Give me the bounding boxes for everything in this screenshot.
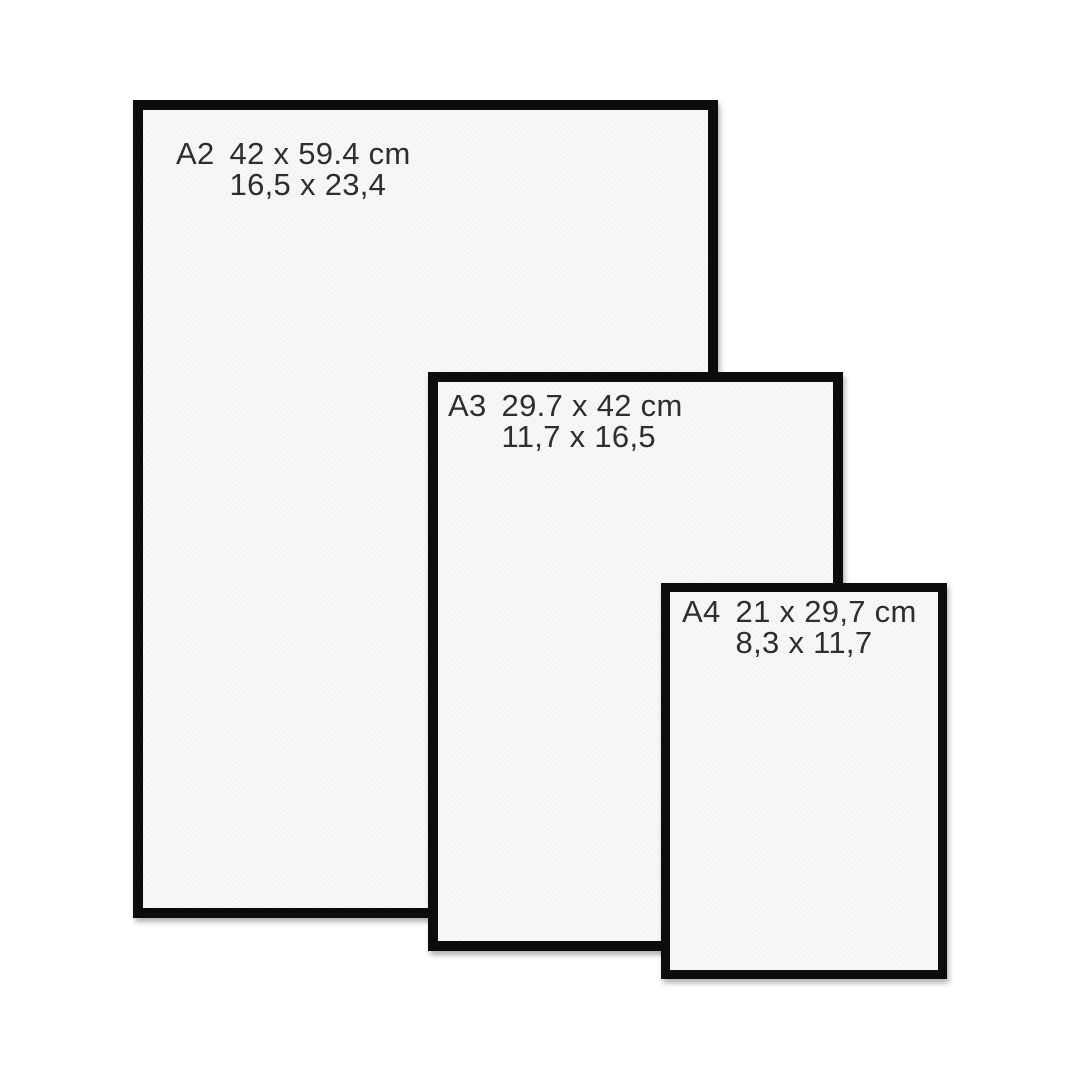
frame-a4-dimensions: 21 x 29,7 cm 8,3 x 11,7 <box>736 596 917 658</box>
frame-a4-size-inches: 8,3 x 11,7 <box>736 627 917 658</box>
frame-a3-label: A3 <box>448 390 487 421</box>
frame-a2-label: A2 <box>176 138 215 169</box>
frame-a2-dimensions: 42 x 59.4 cm 16,5 x 23,4 <box>230 138 411 200</box>
frame-a2-size-cm: 42 x 59.4 cm <box>230 138 411 169</box>
frame-a4-size-text: A4 21 x 29,7 cm 8,3 x 11,7 <box>670 592 938 658</box>
frame-a2-size-inches: 16,5 x 23,4 <box>230 169 411 200</box>
frame-a4-size-cm: 21 x 29,7 cm <box>736 596 917 627</box>
frame-a4: A4 21 x 29,7 cm 8,3 x 11,7 <box>661 583 947 979</box>
frame-a3-size-cm: 29.7 x 42 cm <box>502 390 683 421</box>
frame-a3-size-inches: 11,7 x 16,5 <box>502 421 683 452</box>
frame-a4-label: A4 <box>682 596 721 627</box>
frame-a3-dimensions: 29.7 x 42 cm 11,7 x 16,5 <box>502 390 683 452</box>
frame-a2-size-text: A2 42 x 59.4 cm 16,5 x 23,4 <box>143 110 708 200</box>
frame-a3-size-text: A3 29.7 x 42 cm 11,7 x 16,5 <box>438 382 833 452</box>
frame-size-comparison-diagram: A2 42 x 59.4 cm 16,5 x 23,4 A3 29.7 x 42… <box>0 0 1080 1080</box>
